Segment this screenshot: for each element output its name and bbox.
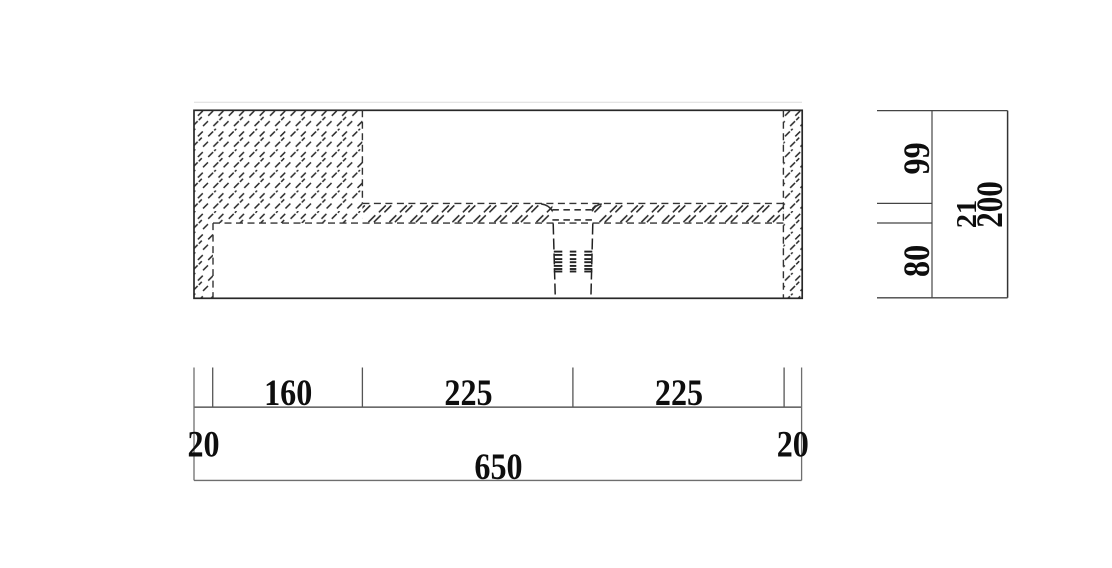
svg-text:160: 160: [264, 373, 312, 413]
svg-text:20: 20: [777, 425, 809, 465]
svg-text:650: 650: [474, 447, 522, 487]
svg-text:99: 99: [897, 142, 937, 174]
svg-text:20: 20: [187, 425, 219, 465]
svg-text:225: 225: [444, 373, 492, 413]
svg-text:225: 225: [655, 373, 703, 413]
svg-text:80: 80: [897, 245, 937, 277]
svg-text:200: 200: [970, 181, 1010, 228]
